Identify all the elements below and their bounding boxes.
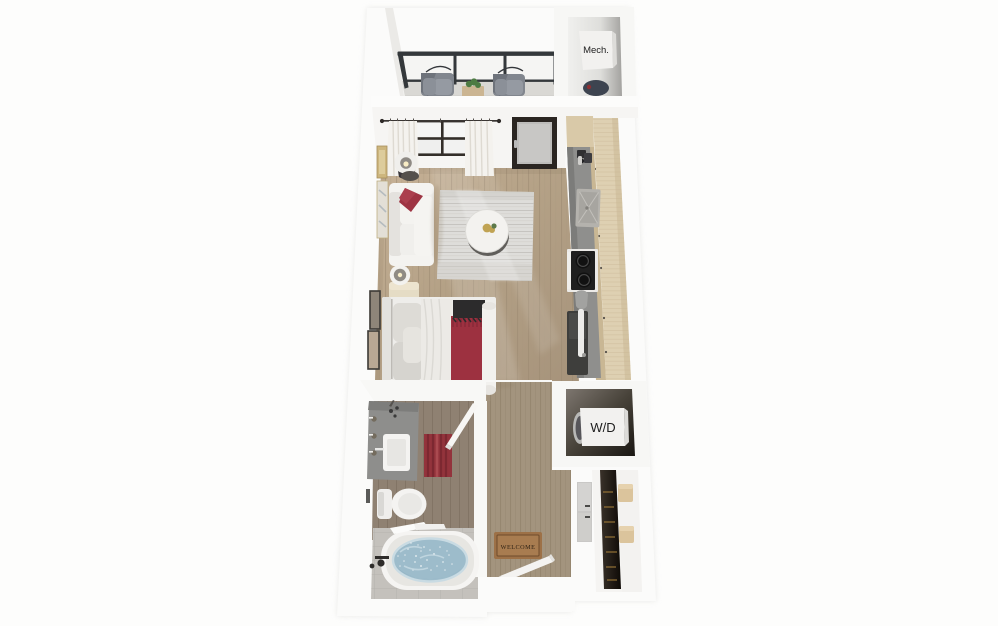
svg-text:WELCOME: WELCOME [501, 544, 536, 551]
svg-text:W/D: W/D [590, 420, 615, 435]
svg-text:Mech.: Mech. [583, 45, 609, 56]
